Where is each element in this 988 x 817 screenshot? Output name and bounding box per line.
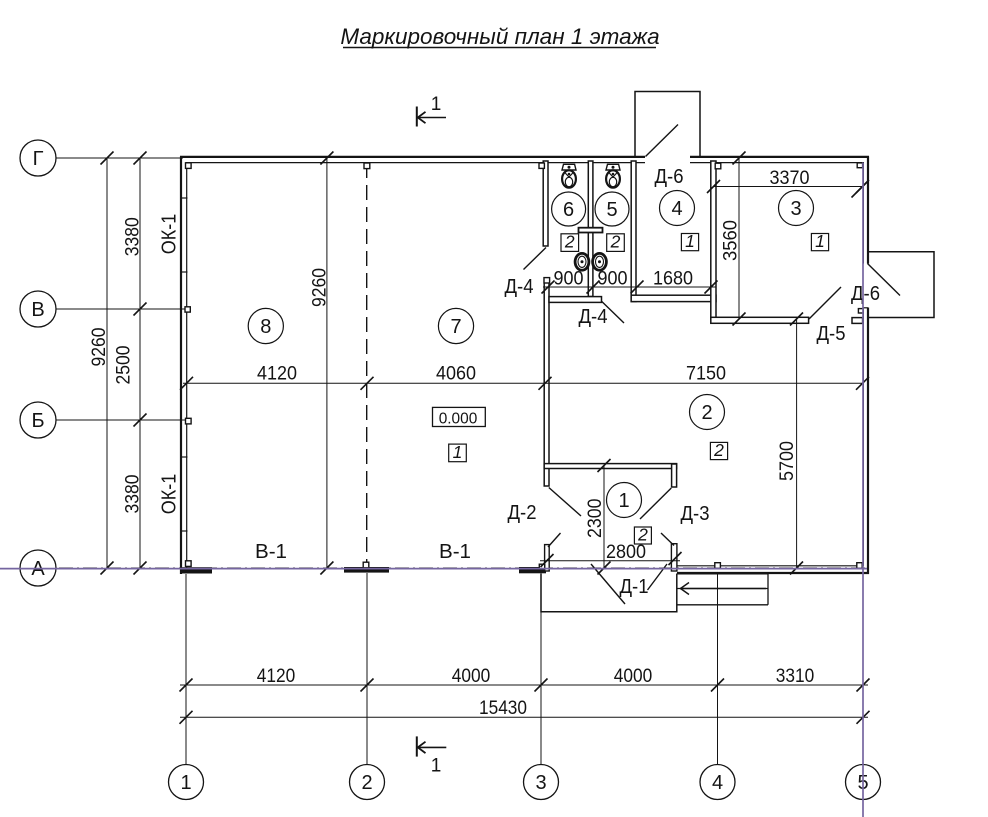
svg-text:1: 1 <box>685 231 695 251</box>
svg-text:Маркировочный план 1 этажа: Маркировочный план 1 этажа <box>340 24 659 49</box>
svg-text:Д-2: Д-2 <box>508 502 537 524</box>
svg-text:7: 7 <box>450 316 461 338</box>
svg-text:15430: 15430 <box>479 698 527 719</box>
svg-text:1: 1 <box>431 94 442 115</box>
svg-text:2300: 2300 <box>585 498 606 538</box>
svg-text:ОК-1: ОК-1 <box>158 474 181 515</box>
svg-text:3560: 3560 <box>721 220 742 261</box>
svg-text:1: 1 <box>180 772 191 794</box>
svg-text:Д-1: Д-1 <box>620 576 649 598</box>
svg-text:В-1: В-1 <box>255 541 287 563</box>
svg-text:4: 4 <box>712 772 723 794</box>
svg-text:9260: 9260 <box>310 268 331 307</box>
svg-text:Г: Г <box>33 148 44 170</box>
svg-text:3380: 3380 <box>123 217 144 256</box>
svg-text:900: 900 <box>554 269 584 290</box>
svg-text:1: 1 <box>431 756 442 777</box>
svg-text:6: 6 <box>563 199 574 221</box>
svg-text:8: 8 <box>260 316 271 338</box>
svg-text:1: 1 <box>815 231 825 251</box>
svg-text:1680: 1680 <box>653 269 693 290</box>
svg-text:9260: 9260 <box>89 328 110 367</box>
svg-text:Д-3: Д-3 <box>681 503 710 525</box>
svg-text:4: 4 <box>671 198 682 220</box>
svg-text:2800: 2800 <box>606 542 646 563</box>
svg-text:4060: 4060 <box>436 364 476 385</box>
svg-text:4120: 4120 <box>257 364 297 385</box>
svg-text:3: 3 <box>535 772 546 794</box>
svg-text:Д-4: Д-4 <box>579 306 608 328</box>
svg-text:1: 1 <box>618 490 629 512</box>
svg-text:2: 2 <box>713 440 724 460</box>
svg-text:2: 2 <box>564 232 575 252</box>
svg-text:Д-6: Д-6 <box>655 166 684 188</box>
svg-text:5700: 5700 <box>777 441 798 481</box>
svg-text:4120: 4120 <box>257 666 296 687</box>
svg-text:3370: 3370 <box>770 168 810 189</box>
svg-text:Д-4: Д-4 <box>505 276 534 298</box>
svg-text:7150: 7150 <box>686 364 726 385</box>
svg-text:Д-6: Д-6 <box>851 283 880 305</box>
svg-text:1: 1 <box>453 442 463 462</box>
svg-text:900: 900 <box>598 269 628 290</box>
svg-text:4000: 4000 <box>614 666 653 687</box>
svg-text:5: 5 <box>606 199 617 221</box>
svg-text:2: 2 <box>610 232 621 252</box>
svg-text:Б: Б <box>31 410 44 432</box>
svg-text:3: 3 <box>790 198 801 220</box>
svg-text:3380: 3380 <box>123 475 144 514</box>
svg-text:ОК-1: ОК-1 <box>158 214 181 255</box>
svg-text:2: 2 <box>637 525 648 545</box>
svg-text:2: 2 <box>361 772 372 794</box>
svg-text:Д-5: Д-5 <box>817 323 846 345</box>
svg-text:0.000: 0.000 <box>439 411 478 428</box>
svg-text:В: В <box>31 299 44 321</box>
svg-text:В-1: В-1 <box>439 541 471 563</box>
svg-text:3310: 3310 <box>776 666 815 687</box>
svg-text:4000: 4000 <box>452 666 491 687</box>
svg-text:2500: 2500 <box>114 346 135 385</box>
svg-text:2: 2 <box>701 402 712 424</box>
